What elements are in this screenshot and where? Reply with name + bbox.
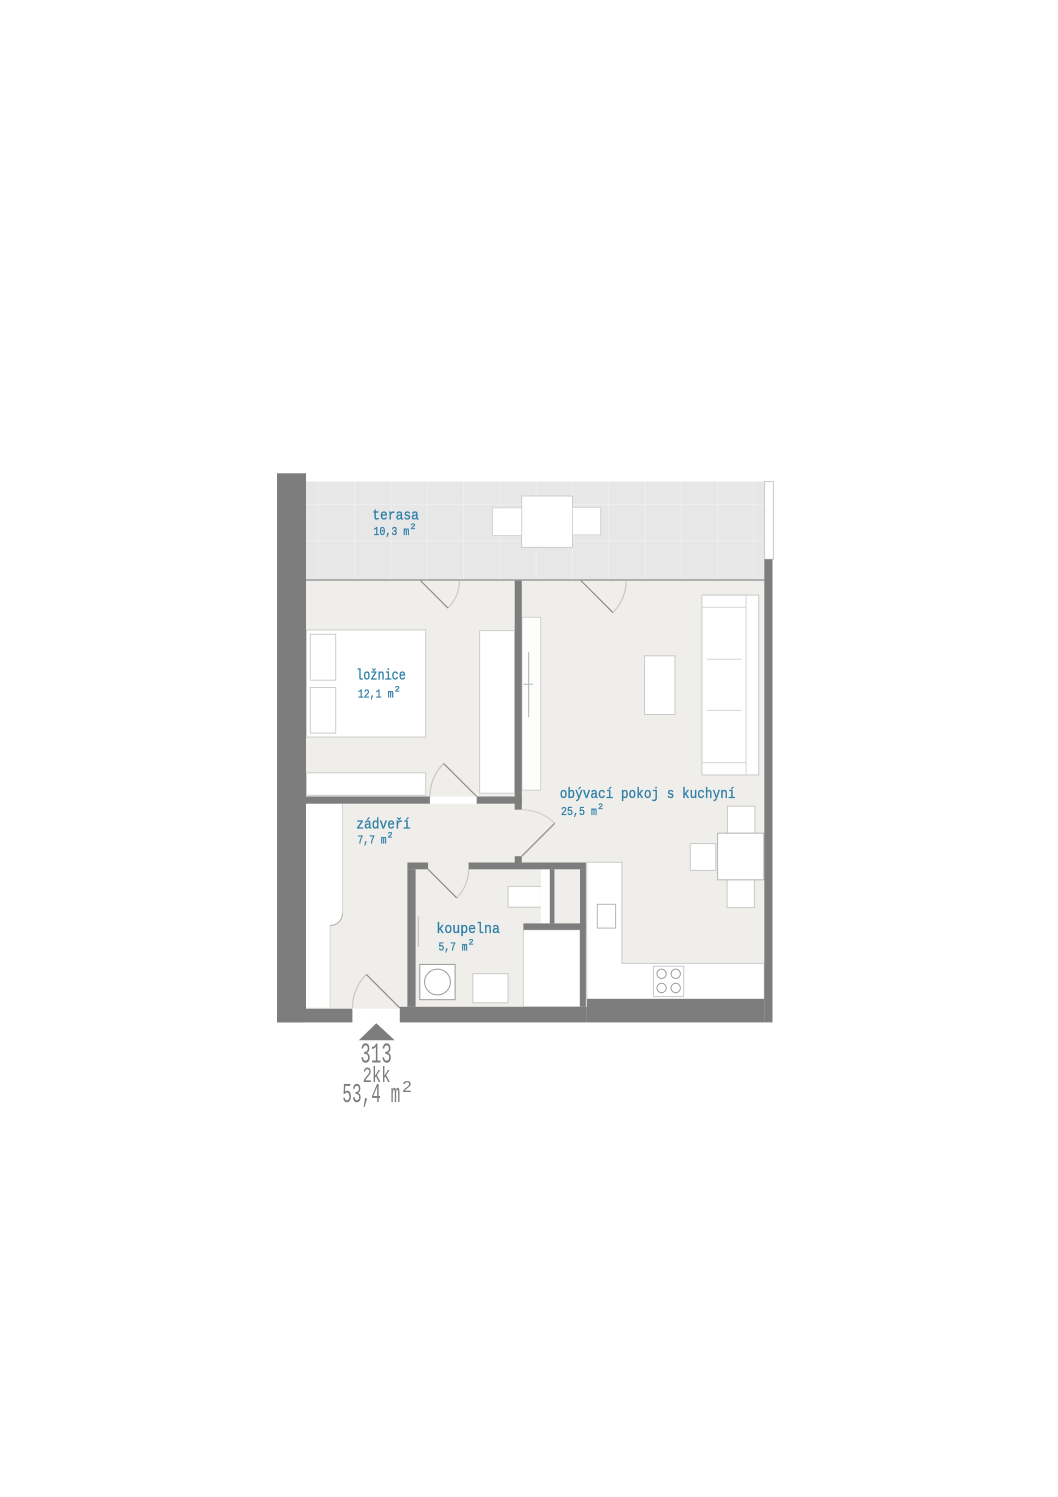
svg-text:2: 2 — [402, 1079, 412, 1098]
svg-text:2: 2 — [469, 937, 474, 947]
svg-text:7,7 m: 7,7 m — [358, 833, 387, 847]
svg-text:53,4 m: 53,4 m — [342, 1081, 400, 1111]
svg-text:5,7 m: 5,7 m — [439, 940, 468, 954]
svg-text:obývací pokoj s kuchyní: obývací pokoj s kuchyní — [560, 786, 736, 803]
svg-text:koupelna: koupelna — [436, 921, 500, 938]
svg-text:10,3 m: 10,3 m — [373, 525, 409, 539]
svg-text:ložnice: ložnice — [356, 668, 406, 685]
svg-text:2: 2 — [388, 830, 393, 840]
svg-text:2: 2 — [410, 522, 415, 532]
svg-text:2: 2 — [598, 802, 603, 812]
svg-text:12,1 m: 12,1 m — [358, 688, 394, 702]
svg-text:zádveří: zádveří — [356, 817, 410, 834]
svg-text:25,5 m: 25,5 m — [561, 805, 597, 819]
svg-text:2: 2 — [395, 685, 400, 695]
